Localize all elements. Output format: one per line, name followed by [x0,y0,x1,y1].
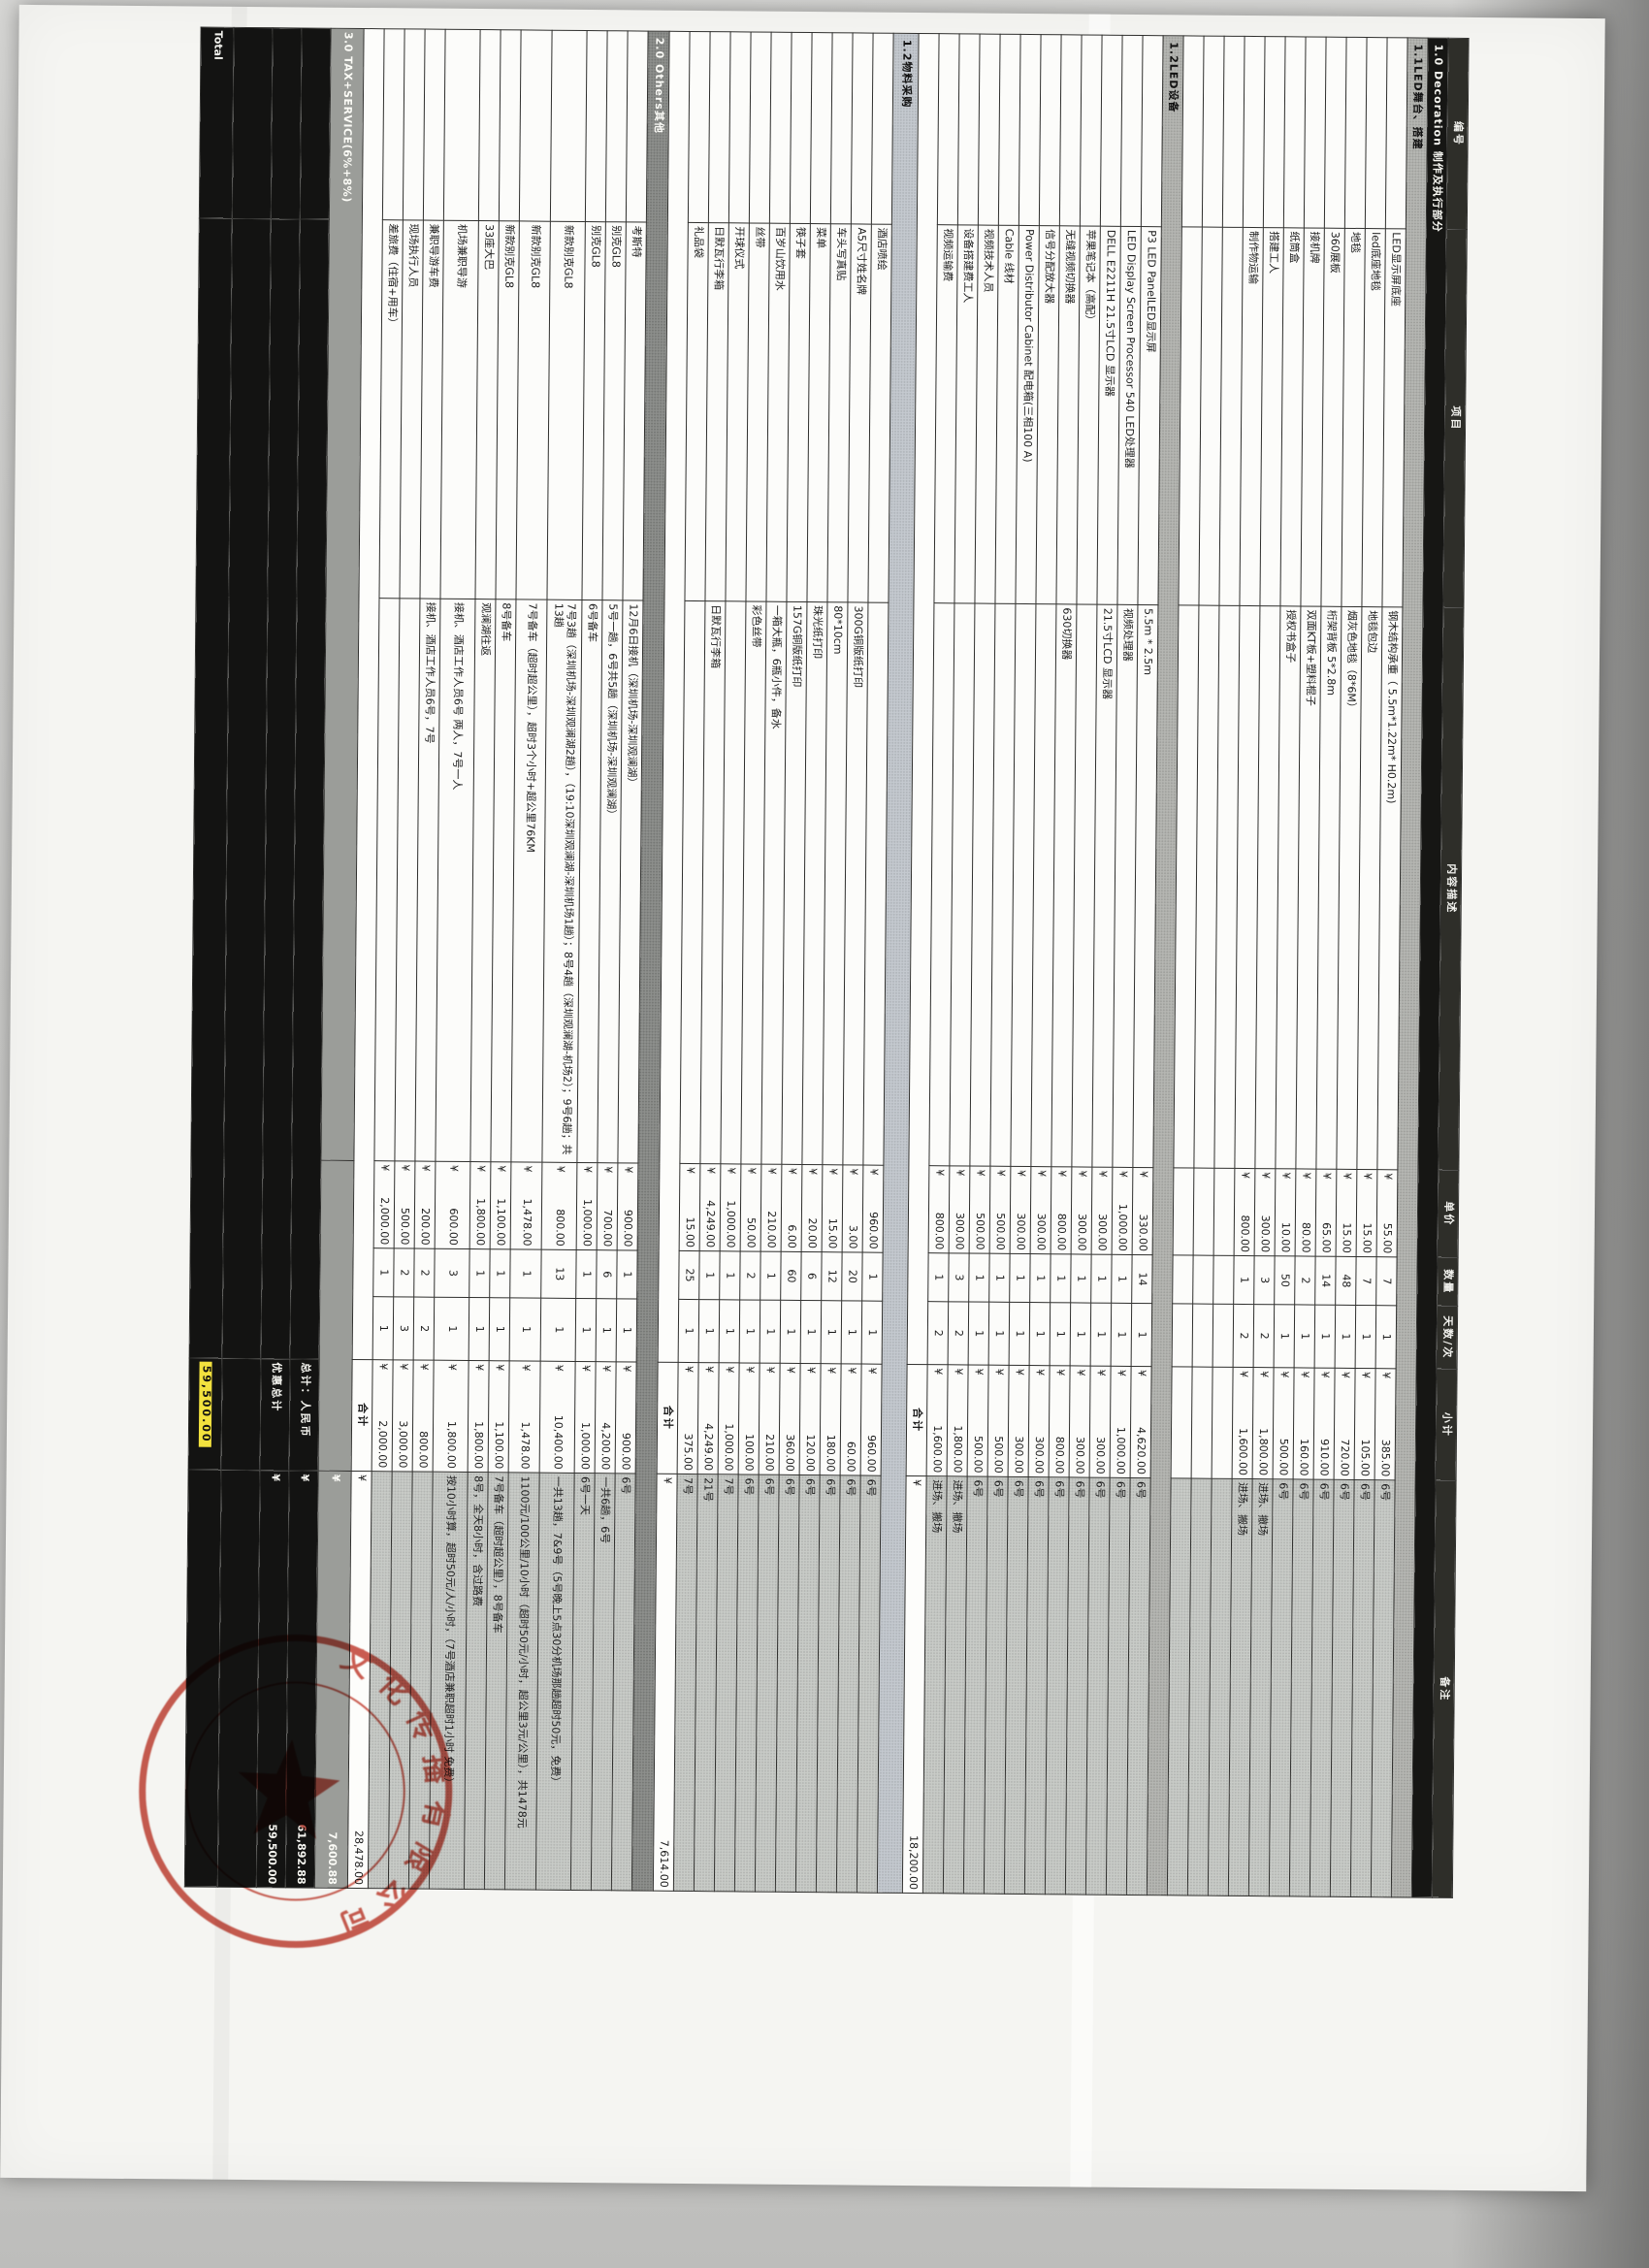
cell-quantity: 1 [617,1250,637,1299]
cell-days: 2 [413,1297,435,1360]
cell-id [749,32,771,223]
cell-id [957,34,980,225]
cell-remark: 21号 [694,1474,718,1892]
cell-item: 日默瓦行李箱 [705,223,728,601]
cell-id [810,33,832,224]
cell-days: 1 [596,1299,617,1362]
cell-subtotal: ¥300.00 [1008,1365,1029,1476]
cell-quantity: 3 [1254,1256,1275,1305]
cell-days: 1 [1090,1303,1112,1366]
cell-unit-price: ¥10.00 [1275,1169,1296,1256]
cell-days: 1 [1111,1303,1132,1366]
cell-subtotal [1171,1367,1192,1478]
cell-subtotal: ¥385.00 [1374,1369,1396,1480]
cell-unit-price: ¥1,000.00 [1112,1167,1133,1254]
cell-unit-price: ¥1,800.00 [469,1162,491,1249]
cell-item: Cable 线材 [995,225,1018,603]
cell-quantity: 2 [1295,1256,1315,1305]
col-header-days: 天数/次 [1437,1306,1458,1369]
cell-quantity: 2 [394,1248,414,1297]
cell-id [1344,37,1367,228]
cell-id [1222,36,1245,227]
cell-id [519,30,552,221]
paper-sheet: 编号 项目 内容描述 单价 数量 天数/次 小计 备注 1.0 Decorati… [0,5,1604,2191]
cell-unit-price: ¥15.00 [822,1165,843,1252]
cell-item: 新款别克GL8 [496,221,519,599]
cell-id [978,34,1000,225]
cell-remark: 进场、搬场 [922,1476,947,1894]
cell-days: 3 [393,1297,414,1360]
cell-days: 1 [988,1302,1010,1365]
cell-remark: 6号 [1289,1479,1313,1896]
cell-description: 7号备车（超时超公里），超时3个小时+超公里76KM [511,599,547,1162]
cell-item: 新款别克GL8 [516,221,550,599]
cell-id [1324,37,1346,228]
cell-quantity: 6 [597,1250,617,1299]
cell-id [443,29,480,220]
cell-id [1304,37,1326,228]
cell-unit-price: ¥300.00 [949,1166,970,1253]
subtotal-label: 合计 [657,1362,678,1474]
cell-item: 考斯特 [623,222,646,600]
cell-quantity: 6 [801,1251,822,1300]
cell-item: 设备搭建费工人 [954,225,978,603]
cell-quantity [1173,1255,1193,1304]
cell-quantity: 1 [969,1253,989,1302]
cell-unit-price: ¥300.00 [1091,1167,1113,1254]
cell-unit-price: ¥1,000.00 [576,1162,598,1249]
cell-unit-price: ¥800.00 [928,1166,950,1253]
subtotal-amount: ¥7,614.00 [653,1474,677,1891]
cell-quantity: 7 [1376,1257,1397,1306]
cell-item: 机场兼职导游 [440,220,478,599]
cell-item: 苹果笔记本（高配） [1077,226,1100,604]
cell-id [1202,36,1224,227]
cell-days [1212,1304,1234,1367]
cell-subtotal: ¥1,800.00 [468,1361,489,1473]
cell-id [605,31,628,222]
total-corner-label [271,28,302,219]
cell-remark: 6号 [734,1474,759,1892]
total-corner-label: Total [199,27,234,218]
cell-id [998,34,1020,225]
cell-unit-price: ¥20.00 [801,1164,823,1251]
cell-days: 1 [739,1300,760,1363]
cell-remark: 6号 [1350,1479,1374,1896]
cell-id [550,30,587,221]
cell-quantity: 1 [1091,1254,1112,1303]
cell-id [851,33,873,224]
cell-id [1059,35,1082,226]
cell-id [1039,35,1061,226]
cell-days: 1 [575,1298,597,1361]
cell-id [708,32,730,223]
cell-remark: 进场、撤场 [943,1476,967,1894]
cell-days: 1 [1070,1303,1091,1366]
cell-subtotal: ¥180.00 [820,1364,841,1475]
cell-item: 新款别克GL8 [547,221,585,599]
cell-item: P3 LED PanelLED显示屏 [1138,227,1161,605]
cell-item: 车头写真贴 [827,224,851,602]
cell-quantity: 1 [510,1249,541,1298]
cell-days: 1 [540,1298,576,1361]
cell-remark: 6号 [1004,1476,1028,1894]
cell-days [1192,1304,1213,1367]
cell-item: 酒店喷绘 [868,224,891,602]
cell-unit-price: ¥960.00 [862,1165,884,1252]
cell-unit-price: ¥1,478.00 [510,1162,542,1249]
cell-quantity: 1 [373,1248,394,1297]
cell-quantity: 1 [699,1251,720,1300]
cell-quantity: 3 [435,1248,469,1297]
cell-subtotal: ¥1,800.00 [1252,1368,1274,1479]
subtotal-label: 合计 [351,1359,372,1471]
cell-quantity [1213,1255,1234,1304]
cell-subtotal: ¥800.00 [1049,1366,1070,1477]
cell-days: 1 [841,1301,862,1364]
cell-quantity: 1 [576,1249,597,1298]
cell-remark: 进场、搬场 [1228,1478,1252,1895]
cell-id [478,30,501,221]
cell-item: 百岁山饮用水 [766,223,790,601]
cell-remark [1167,1478,1191,1895]
cell-id [1100,35,1122,226]
cell-unit-price: ¥15.00 [1356,1169,1377,1256]
cell-item [1179,227,1202,605]
cell-id [769,32,792,223]
cell-subtotal: ¥500.00 [1273,1368,1294,1479]
cell-remark: 6号 [775,1474,799,1892]
cell-days [1172,1304,1193,1367]
cell-quantity: 1 [1051,1254,1071,1303]
col-header-item: 项目 [1443,229,1467,607]
cell-unit-price: ¥600.00 [435,1161,470,1248]
col-header-id: 编号 [1446,38,1469,229]
cell-quantity: 1 [490,1249,510,1298]
cell-remark: 一共13趟，7&9号（5号晚上5点30分机场那趟超时50元，免费） [535,1473,574,1890]
cell-days: 2 [948,1302,969,1365]
cell-description: 接机、酒店工作人员6号 两人，7号一人 [436,599,475,1161]
cell-subtotal: ¥120.00 [799,1363,821,1474]
cell-days: 1 [698,1300,720,1363]
cell-days: 1 [1029,1303,1051,1366]
cell-item: 礼品袋 [685,222,708,600]
cell-remark: 6号 [1065,1477,1089,1895]
cell-unit-price: ¥900.00 [617,1163,638,1250]
cell-unit-price: ¥65.00 [1315,1169,1337,1256]
cell-unit-price: ¥55.00 [1376,1170,1398,1257]
cell-id [1243,36,1265,227]
cell-blank [318,1160,354,1471]
cell-item: 视频技术人员 [975,225,998,603]
cell-item: LED显示屏底座 [1382,229,1406,607]
cell-id [937,34,959,225]
cell-unit-price: ¥800.00 [1234,1168,1255,1255]
cell-subtotal: ¥300.00 [1028,1366,1050,1477]
total-label: 59,500.00 [188,1358,222,1470]
cell-quantity: 3 [949,1253,969,1302]
cell-subtotal: ¥60.00 [840,1364,861,1475]
cell-id [1283,37,1306,228]
cell-subtotal: ¥160.00 [1293,1368,1314,1479]
cell-unit-price: ¥80.00 [1295,1169,1316,1256]
cell-remark: 6号 [1371,1480,1395,1897]
cell-item: 纸筒盒 [1280,228,1304,606]
cell-item: 33座大巴 [475,221,499,599]
total-corner-label [300,28,331,219]
cell-remark: 6号一天 [570,1473,595,1890]
cell-unit-price: ¥3.00 [842,1165,863,1252]
cell-subtotal: ¥1,600.00 [1232,1367,1253,1478]
cell-quantity: 2 [414,1248,435,1297]
subtotal-label: 合计 [906,1364,927,1475]
cell-remark: 6号 [857,1475,881,1893]
cell-subtotal: ¥500.00 [987,1365,1009,1476]
cell-unit-price: ¥300.00 [1030,1167,1051,1254]
cell-id [1181,36,1204,227]
cell-id [728,32,751,223]
cell-item [1199,227,1222,605]
cell-subtotal: ¥100.00 [738,1363,760,1474]
total-label: 优惠总计 [260,1359,290,1471]
cell-id [688,31,710,222]
cell-remark: 一共6趟，6号 [591,1474,615,1891]
cell-subtotal: ¥500.00 [967,1365,988,1476]
cell-id [403,29,425,220]
cell-days: 1 [1294,1305,1315,1368]
cell-days: 1 [1355,1305,1376,1368]
cell-remark: 7号 [673,1474,697,1891]
cell-quantity: 1 [1112,1254,1132,1303]
cell-quantity: 1 [989,1253,1010,1302]
cell-days: 1 [760,1300,781,1363]
cell-item: 搭建工人 [1260,228,1283,606]
cell-quantity: 1 [1030,1254,1051,1303]
col-header-quantity: 数量 [1438,1257,1458,1306]
cell-subtotal: ¥1,000.00 [574,1361,596,1473]
cell-unit-price: ¥50.00 [740,1164,761,1251]
cell-subtotal: ¥4,200.00 [595,1362,616,1474]
cell-item: 现场执行人员 [400,220,423,599]
cell-days: 1 [372,1297,394,1360]
cell-item: 筷子套 [787,223,810,601]
cell-subtotal: ¥4,620.00 [1130,1366,1151,1477]
cell-subtotal: ¥360.00 [779,1363,800,1474]
cell-quantity: 14 [1315,1256,1336,1305]
cell-subtotal: ¥960.00 [860,1364,882,1475]
cell-unit-price: ¥500.00 [394,1161,415,1248]
cell-remark: 6号 [795,1474,820,1892]
cell-item: 信号分配放大器 [1036,226,1059,604]
cell-unit-price: ¥300.00 [1010,1166,1031,1253]
col-header-remark: 备注 [1432,1480,1456,1897]
cell-id [1120,35,1143,226]
cell-quantity: 50 [1275,1256,1295,1305]
cell-quantity: 2 [740,1251,760,1300]
cell-id [585,31,607,222]
cell-days: 1 [489,1298,510,1361]
cell-quantity: 20 [842,1252,862,1301]
cell-item: DELL E2211H 21.5寸LCD 显示器 [1097,226,1120,604]
cell-item [1219,227,1243,605]
cell-days: 1 [1335,1305,1356,1368]
cell-subtotal: ¥375.00 [677,1362,698,1474]
cell-remark: 6号 [1045,1477,1069,1895]
cell-subtotal: ¥800.00 [412,1360,434,1472]
cell-unit-price: ¥6.00 [781,1164,802,1251]
cell-id [1385,38,1407,229]
total-corner-label [232,27,273,218]
cell-remark [1187,1478,1212,1895]
cell-unit-price [1173,1168,1194,1255]
cell-item: 别克GL8 [602,222,626,600]
cell-days: 2 [1233,1304,1254,1367]
cell-quantity: 7 [1356,1256,1376,1305]
cell-remark: 7号备车（超时超公里），8号备车 [484,1473,508,1890]
cell-quantity: 1 [469,1249,490,1298]
cell-days: 1 [469,1298,490,1361]
cell-remark: 6号 [836,1475,860,1893]
cell-unit-price: ¥700.00 [597,1163,618,1250]
cell-quantity: 1 [1010,1253,1030,1302]
cell-id [1080,35,1102,226]
cell-subtotal: ¥900.00 [615,1362,636,1474]
cell-item: 无缝视频切换器 [1056,226,1080,604]
cell-days: 1 [1131,1303,1152,1366]
cell-quantity: 25 [679,1250,699,1299]
cell-item: 丝带 [746,223,769,601]
cell-remark: 1100元/100公里/10小时（超时50元/小时，超公里3元/公里），共147… [504,1473,539,1890]
cell-remark: 6号 [816,1475,840,1893]
cell-id [1141,36,1163,227]
cell-days: 2 [927,1302,949,1365]
cell-days: 1 [1009,1302,1030,1365]
cell-item: 别克GL8 [582,222,605,600]
cell-quantity: 1 [928,1253,949,1302]
cell-unit-price: ¥1,000.00 [720,1164,741,1251]
cell-unit-price: ¥500.00 [969,1166,990,1253]
cell-unit-price: ¥330.00 [1132,1167,1153,1254]
cell-remark: 6号 [1126,1477,1150,1895]
cell-unit-price: ¥800.00 [1051,1167,1072,1254]
cell-id [499,30,521,221]
cell-remark: 6号 [1330,1479,1354,1896]
cell-subtotal: ¥1,100.00 [488,1361,509,1473]
cell-days: 1 [1050,1303,1071,1366]
cell-unit-price [1213,1168,1235,1255]
cell-item: 差旅费（住宿+用车） [379,220,403,599]
total-label [221,1358,261,1470]
cell-remark: 6号 [1309,1479,1334,1896]
cell-subtotal: ¥910.00 [1313,1368,1335,1479]
cell-subtotal: ¥1,800.00 [947,1365,968,1476]
cell-quantity: 1 [862,1252,883,1301]
cell-subtotal [1191,1367,1212,1478]
cell-unit-price: ¥300.00 [1071,1167,1092,1254]
cell-subtotal: ¥300.00 [1069,1366,1090,1477]
cell-id [830,33,853,224]
cell-remark [1208,1478,1232,1895]
cell-quantity: 1 [760,1251,781,1300]
rotated-sheet: 编号 项目 内容描述 单价 数量 天数/次 小计 备注 1.0 Decorati… [0,0,1649,2268]
cell-remark: 6号 [1269,1479,1293,1896]
cell-unit-price: ¥15.00 [1336,1169,1357,1256]
cell-subtotal: ¥1,000.00 [1110,1366,1131,1477]
cell-subtotal: ¥1,478.00 [508,1361,540,1473]
cell-description: 7号3趟（深圳机场-深圳观澜湖2趟），（19:10深圳观澜湖-深圳机场1趟）；8… [542,599,582,1162]
cell-id [423,29,445,220]
cell-id [626,31,648,222]
cell-subtotal: ¥300.00 [1089,1366,1111,1477]
cell-unit-price: ¥1,100.00 [490,1162,511,1249]
cell-days: 2 [1253,1305,1275,1368]
cell-remark: 6号 [611,1474,635,1891]
cell-quantity: 1 [720,1251,740,1300]
scanned-document: 编号 项目 内容描述 单价 数量 天数/次 小计 备注 1.0 Decorati… [0,0,1649,2268]
cell-remark: 6号 [963,1476,987,1894]
cell-quantity: 12 [822,1252,842,1301]
cell-id [790,32,812,223]
subtotal-amount: ¥18,200.00 [902,1475,926,1893]
cell-unit-price: ¥800.00 [541,1162,577,1249]
cell-remark: 进场、撤场 [1248,1479,1273,1896]
cell-subtotal: ¥3,000.00 [392,1360,413,1472]
cell-item: 360展板 [1321,228,1344,606]
cell-remark: 6号 [1024,1477,1049,1895]
cell-remark: 7号 [714,1474,738,1892]
cell-days: 1 [1314,1305,1336,1368]
cell-remark: 6号 [984,1476,1008,1894]
cell-remark: 6号 [755,1474,779,1892]
cell-item: 接机牌 [1301,228,1324,606]
cell-days: 1 [800,1300,822,1363]
cell-subtotal: ¥1,600.00 [926,1365,948,1476]
cell-item: 制作物运输 [1240,227,1263,605]
cell-days: 1 [509,1298,541,1361]
cell-days: 1 [719,1300,740,1363]
cell-remark: 6号 [1085,1477,1110,1895]
cell-unit-price: ¥200.00 [414,1161,436,1248]
cell-id [1263,37,1285,228]
cell-unit-price: ¥2,000.00 [373,1161,395,1248]
cell-item: 地毯 [1342,228,1365,606]
cell-quantity: 14 [1132,1254,1152,1303]
cell-item: 开球仪式 [726,223,749,601]
cell-id [871,33,893,224]
cell-id [1018,34,1041,225]
cell-unit-price: ¥210.00 [760,1164,782,1251]
col-header-subtotal: 小计 [1436,1369,1457,1480]
cell-subtotal: ¥2,000.00 [372,1360,393,1472]
cell-days: 1 [434,1297,469,1360]
cell-unit-price: ¥4,249.00 [699,1164,721,1251]
cell-subtotal: ¥105.00 [1354,1368,1375,1479]
cell-days: 1 [616,1299,637,1362]
cell-item: led底座地毯 [1362,229,1385,607]
cell-quantity: 48 [1336,1256,1356,1305]
cell-item: A5尺寸姓名牌 [848,224,871,602]
cell-item: Power Distributor Cabinet 配电箱(三相100 A) [1016,225,1039,603]
star-icon [234,1731,352,1853]
cell-subtotal: ¥720.00 [1334,1368,1355,1479]
cell-id [1365,38,1387,229]
cell-days: 1 [780,1300,801,1363]
cell-remark: 6号 [1106,1477,1130,1895]
cell-item: LED Display Screen Processor 540 LED处理器 [1117,226,1141,604]
cell-days: 1 [968,1302,989,1365]
cell-item: 菜单 [807,224,830,602]
cell-quantity: 60 [781,1251,801,1300]
